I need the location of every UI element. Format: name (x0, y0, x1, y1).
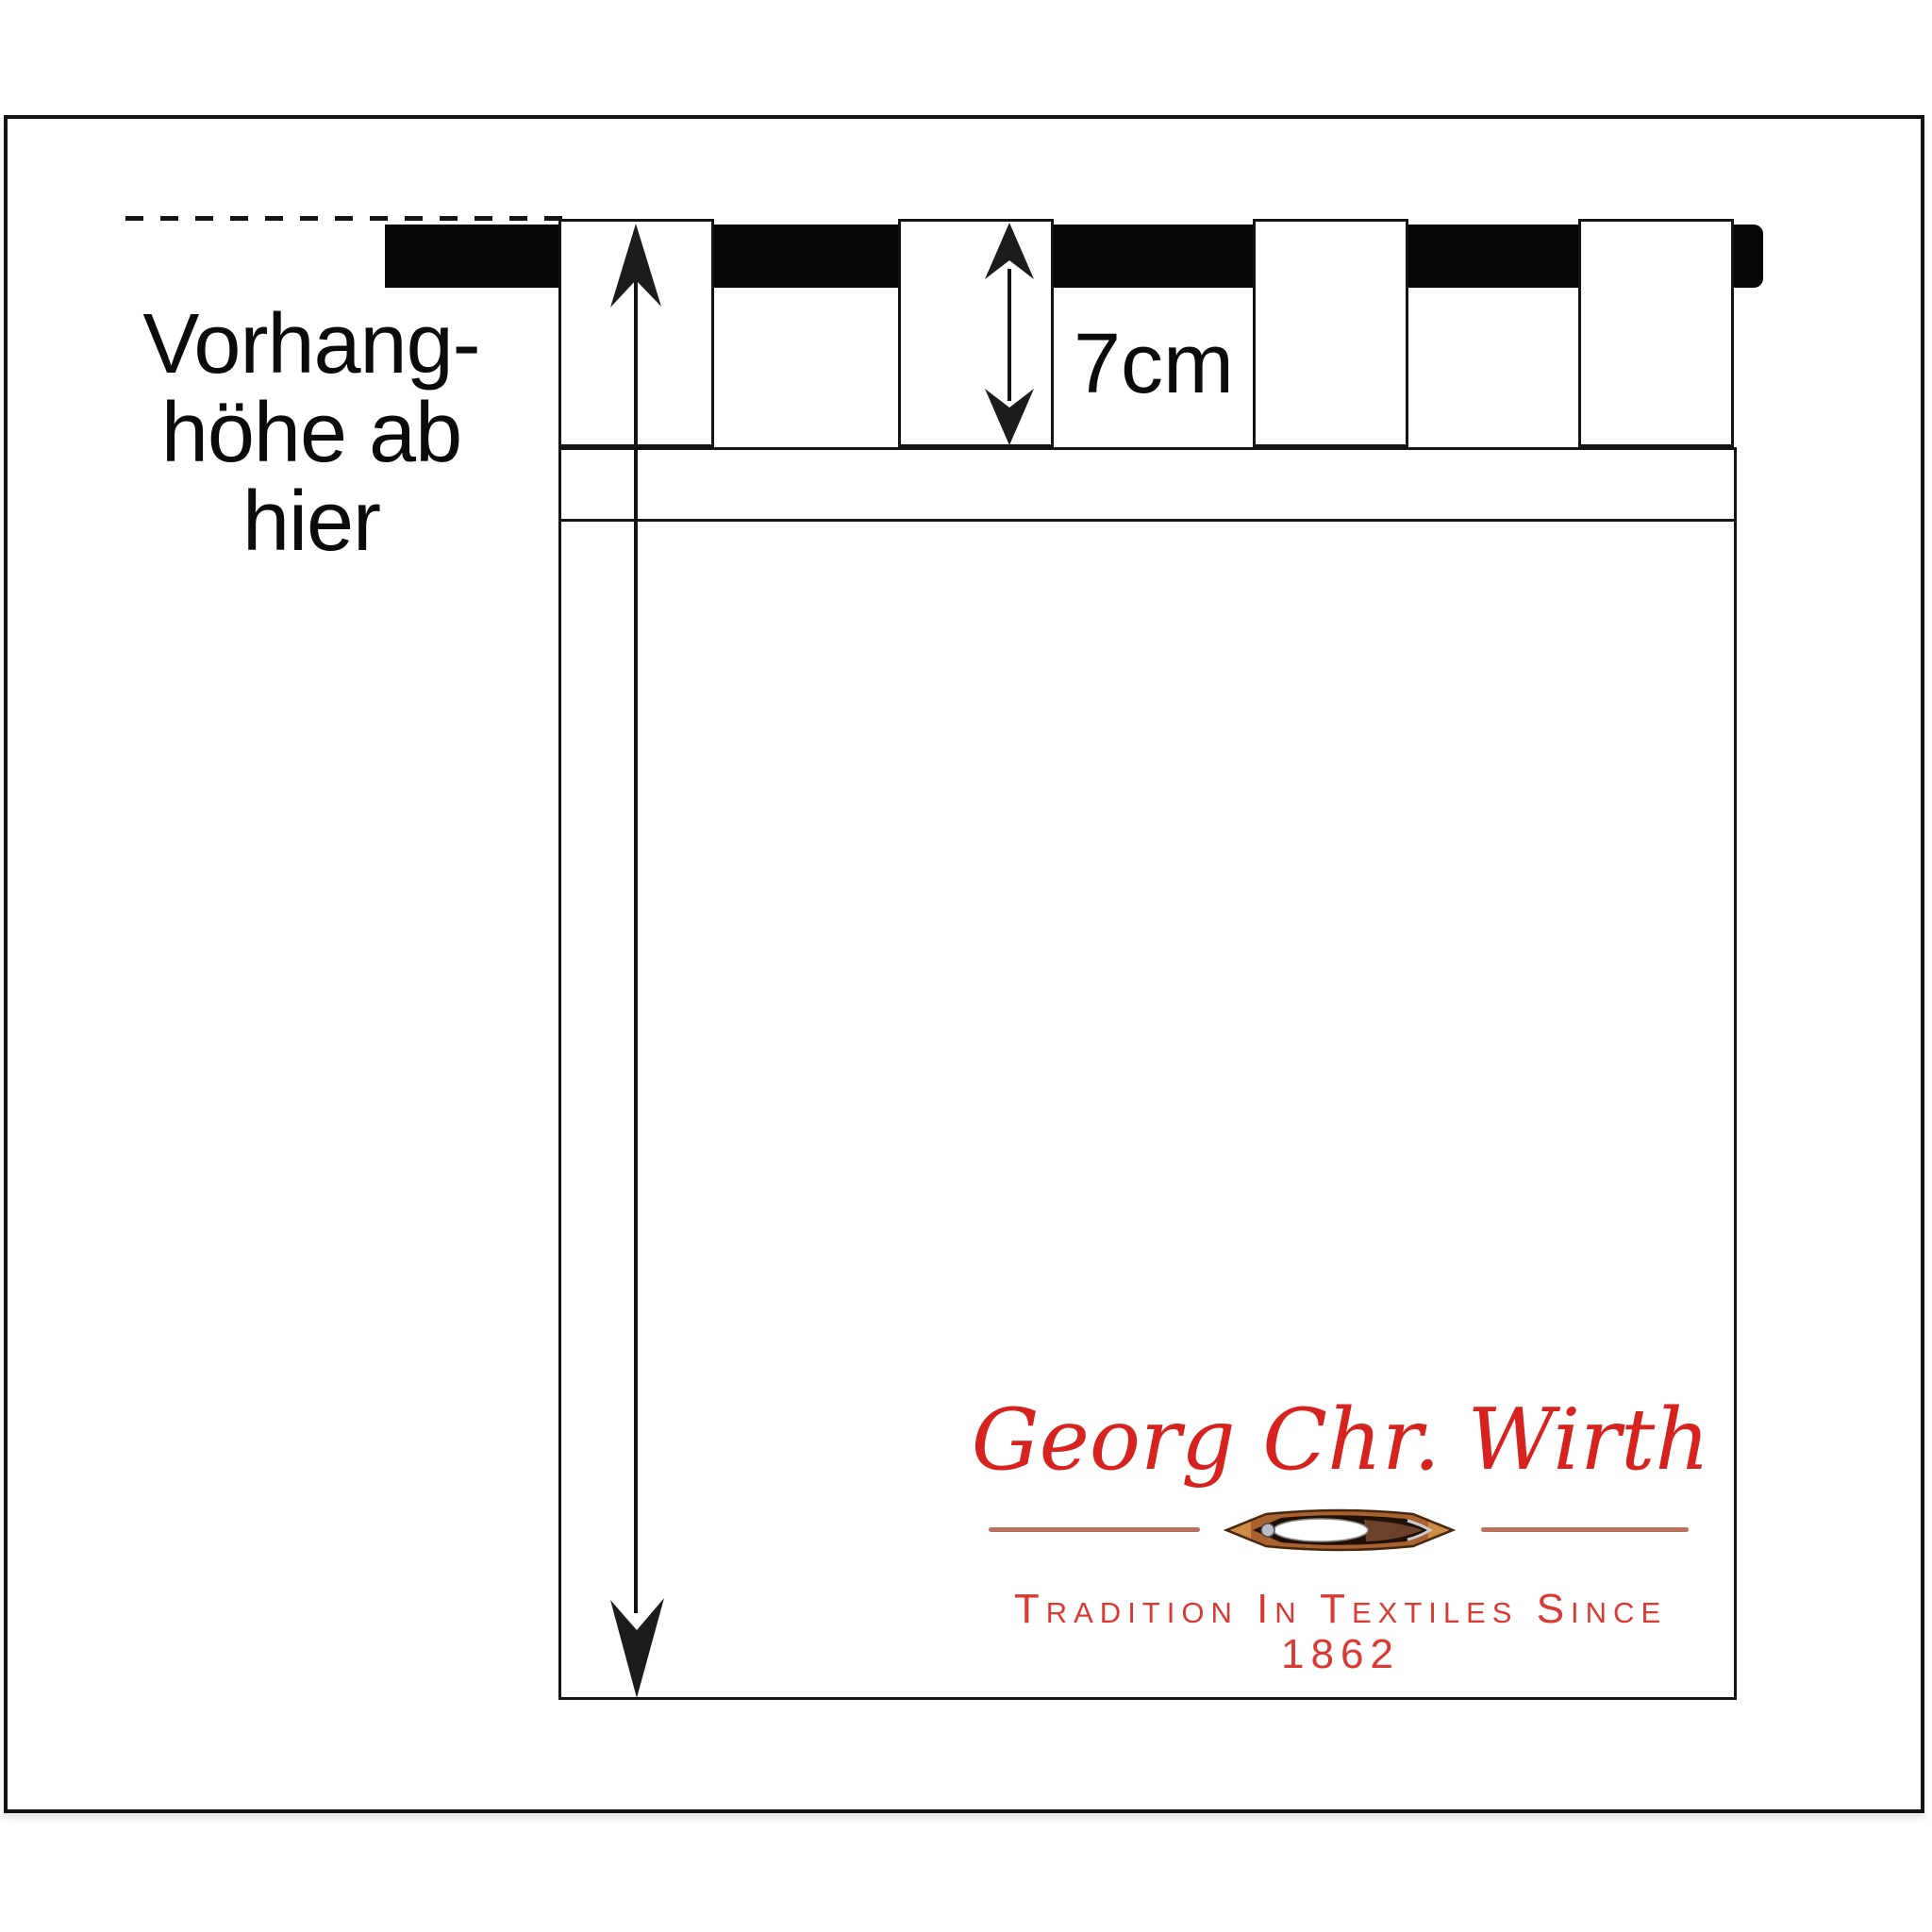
curtain-height-arrow-bottom-head (608, 1594, 668, 1700)
tab-height-label: 7cm (1074, 320, 1357, 408)
hanging-height-note: Vorhang- höhe ab hier (57, 300, 566, 566)
brand-name: Georg Chr. Wirth (963, 1391, 1718, 1491)
tab-height-arrow-bottom-head (983, 385, 1036, 445)
hem-seam-line (558, 519, 1737, 522)
curtain-height-arrow-top-head (608, 222, 666, 316)
tab-height-arrow-shaft (1008, 269, 1011, 401)
weaving-shuttle-icon (1223, 1506, 1457, 1555)
brand-separator-line-left (989, 1527, 1200, 1532)
hanging-height-dashed-line (125, 216, 567, 221)
note-line-1: Vorhang- (57, 300, 566, 389)
curtain-panel (558, 447, 1737, 1700)
note-line-3: hier (57, 477, 566, 566)
note-line-2: höhe ab (57, 389, 566, 477)
brand-separator-line-right (1481, 1527, 1689, 1532)
curtain-height-arrow-shaft (634, 274, 638, 1613)
brand-tagline: Tradition In Textiles Since 1862 (963, 1587, 1718, 1677)
tab-height-arrow-top-head (983, 223, 1036, 283)
curtain-tab-4 (1578, 219, 1734, 447)
curtain-diagram: Vorhang- höhe ab hier 7cm Georg Chr. Wir… (0, 0, 1932, 1932)
